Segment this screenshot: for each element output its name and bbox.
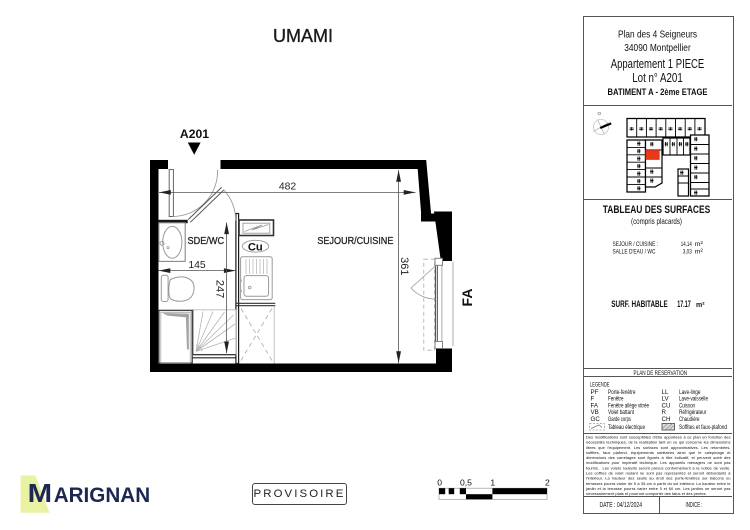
- svg-text:Appartement 1 PIECE: Appartement 1 PIECE: [611, 56, 705, 71]
- svg-text:DATE : 04/12/2024: DATE : 04/12/2024: [600, 502, 643, 509]
- svg-text:SURF. HABITABLE: SURF. HABITABLE: [611, 299, 668, 309]
- svg-text:247: 247: [214, 280, 226, 298]
- svg-text:(compris placards): (compris placards): [631, 216, 682, 226]
- svg-text:m²: m²: [695, 241, 704, 248]
- svg-text:17.17: 17.17: [677, 299, 691, 309]
- svg-text:SEJOUR / CUISINE :: SEJOUR / CUISINE :: [613, 241, 659, 248]
- svg-text:3,03: 3,03: [683, 249, 692, 256]
- svg-text:INDICE :: INDICE :: [686, 502, 703, 509]
- svg-text:0: 0: [437, 478, 442, 488]
- svg-text:361: 361: [398, 257, 410, 275]
- svg-text:TABLEAU DES SURFACES: TABLEAU DES SURFACES: [603, 204, 711, 216]
- svg-text:SDE/WC: SDE/WC: [188, 236, 225, 247]
- svg-text:145: 145: [188, 260, 206, 271]
- svg-text:ARIGNAN: ARIGNAN: [54, 483, 151, 507]
- svg-text:1: 1: [490, 478, 495, 488]
- svg-text:M: M: [28, 480, 53, 508]
- svg-text:m²: m²: [695, 249, 704, 256]
- svg-text:m²: m²: [696, 302, 705, 309]
- svg-text:Chaudière: Chaudière: [679, 416, 700, 423]
- svg-text:Soffites et faux-plafond: Soffites et faux-plafond: [679, 424, 727, 431]
- svg-text:Garde corps: Garde corps: [608, 416, 631, 423]
- svg-text:0,5: 0,5: [460, 478, 472, 488]
- svg-text:GC: GC: [591, 416, 601, 423]
- svg-text:A201: A201: [180, 127, 209, 141]
- svg-text:2: 2: [545, 478, 550, 488]
- svg-text:SEJOUR/CUISINE: SEJOUR/CUISINE: [317, 236, 393, 247]
- svg-text:FA: FA: [459, 289, 475, 307]
- svg-text:CH: CH: [662, 416, 671, 423]
- svg-text:O: O: [598, 111, 602, 116]
- svg-text:Tableau électrique: Tableau électrique: [608, 424, 645, 431]
- svg-text:34090 Montpellier: 34090 Montpellier: [624, 43, 691, 54]
- svg-text:BATIMENT A - 2ème ETAGE: BATIMENT A - 2ème ETAGE: [608, 87, 708, 98]
- svg-text:LEGENDE: LEGENDE: [590, 382, 610, 389]
- svg-text:PLAN DE RESERVATION: PLAN DE RESERVATION: [634, 370, 688, 377]
- svg-text:Plan des 4 Seigneurs: Plan des 4 Seigneurs: [618, 30, 697, 41]
- svg-text:Cu: Cu: [248, 241, 263, 253]
- svg-text:14,14: 14,14: [681, 241, 692, 248]
- svg-text:Lot n° A201: Lot n° A201: [632, 70, 683, 85]
- svg-text:SALLE D'EAU / WC: SALLE D'EAU / WC: [613, 249, 656, 256]
- svg-text:482: 482: [279, 182, 297, 193]
